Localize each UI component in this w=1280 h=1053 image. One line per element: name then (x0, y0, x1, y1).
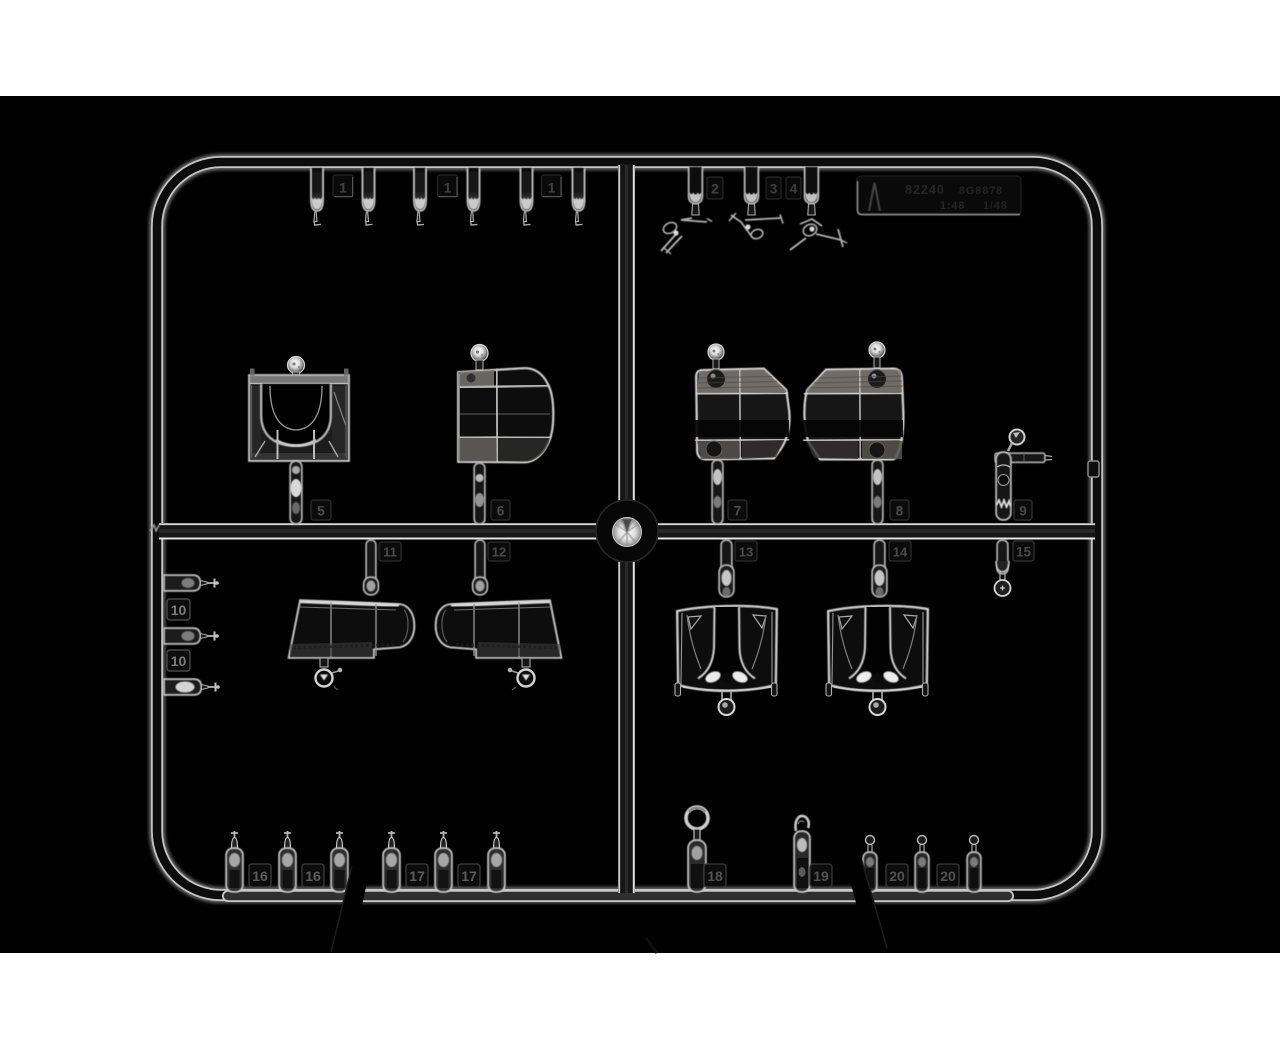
svg-text:16: 16 (305, 868, 321, 884)
svg-text:19: 19 (813, 868, 829, 884)
svg-text:10: 10 (171, 653, 187, 669)
svg-text:2: 2 (711, 181, 719, 197)
svg-text:1: 1 (548, 180, 556, 196)
svg-text:3: 3 (770, 181, 778, 197)
svg-text:11: 11 (383, 545, 397, 560)
svg-text:20: 20 (940, 868, 956, 884)
svg-text:1: 1 (444, 180, 452, 196)
svg-text:8G8878: 8G8878 (959, 185, 1003, 197)
svg-text:5: 5 (317, 504, 325, 519)
svg-text:10: 10 (171, 602, 187, 618)
svg-text:9: 9 (1019, 504, 1027, 519)
svg-text:8: 8 (896, 504, 904, 519)
svg-text:1/48: 1/48 (983, 200, 1008, 212)
svg-text:1: 1 (339, 180, 347, 196)
svg-text:13: 13 (739, 545, 753, 560)
svg-text:7: 7 (734, 504, 742, 519)
svg-text:6: 6 (497, 504, 505, 519)
svg-text:14: 14 (893, 545, 908, 560)
svg-text:17: 17 (409, 868, 425, 884)
svg-text:17: 17 (461, 868, 477, 884)
svg-text:4: 4 (790, 181, 798, 197)
svg-text:20: 20 (889, 868, 905, 884)
svg-text:18: 18 (707, 868, 723, 884)
svg-text:15: 15 (1016, 545, 1032, 560)
svg-text:82240: 82240 (905, 183, 945, 197)
svg-text:1:48: 1:48 (940, 200, 965, 212)
svg-text:12: 12 (492, 545, 506, 560)
svg-text:16: 16 (252, 868, 268, 884)
